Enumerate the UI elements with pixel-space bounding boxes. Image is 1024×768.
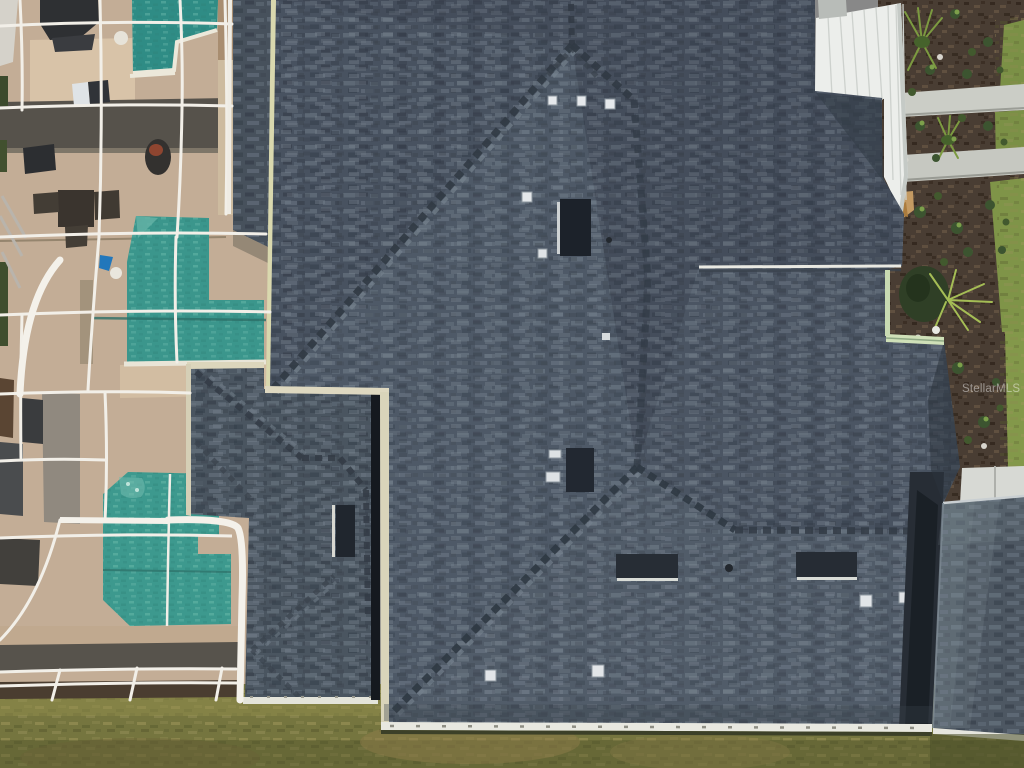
svg-text:StellarMLS: StellarMLS	[962, 383, 1020, 395]
